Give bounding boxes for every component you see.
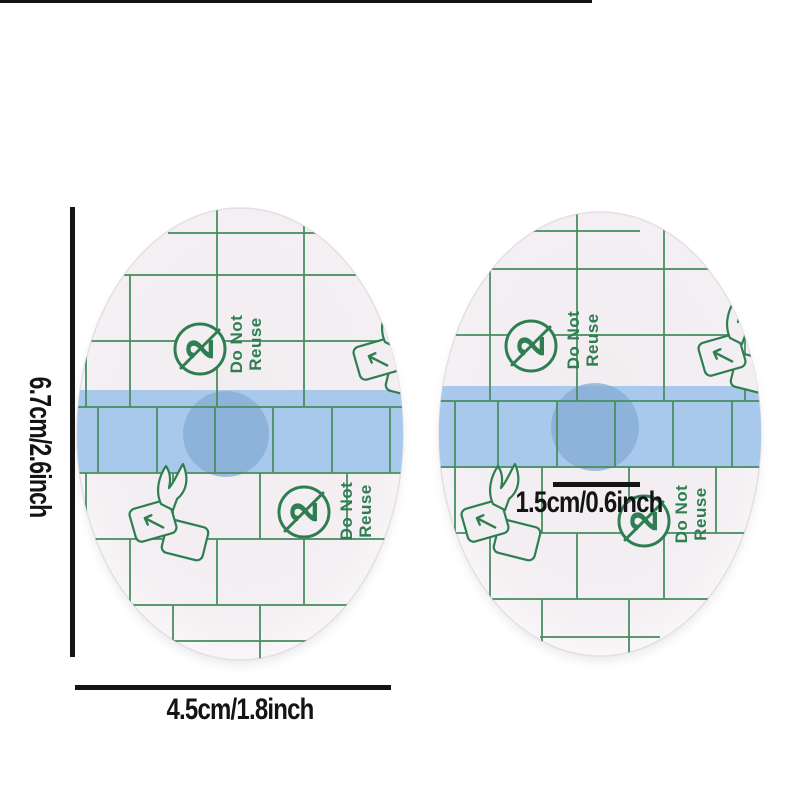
do-not-reuse-label: Do Not Reuse (564, 311, 602, 370)
width-measure-line (75, 685, 391, 690)
center-pad-circle (183, 391, 269, 477)
svg-text:Do Not: Do Not (337, 482, 356, 541)
height-measure-line (70, 207, 75, 657)
svg-text:Do Not: Do Not (227, 315, 246, 374)
svg-text:2: 2 (284, 501, 326, 522)
svg-text:2: 2 (511, 335, 553, 356)
patch-right: 2 Do Not Reuse 2 Do Not Reuse ot e (430, 211, 778, 675)
patches-illustration: 2 Do Not Reuse 2 Do Not Reuse ot e (0, 0, 800, 800)
svg-text:Reuse: Reuse (356, 484, 375, 538)
svg-text:Do Not: Do Not (564, 311, 583, 370)
no-reuse-icon: 2 (506, 321, 556, 371)
center-pad-circle (551, 383, 639, 471)
width-measure-label: 4.5cm/1.8inch (166, 693, 313, 727)
do-not-reuse-label: Do Not Reuse (337, 482, 375, 541)
svg-text:Reuse: Reuse (691, 487, 710, 541)
svg-text:Reuse: Reuse (246, 317, 265, 371)
height-measure-label: 6.7cm/2.6inch (22, 377, 58, 518)
do-not-reuse-label: Do Not Reuse (672, 485, 710, 544)
svg-text:Reuse: Reuse (583, 313, 602, 367)
no-reuse-icon: 2 (279, 487, 329, 537)
no-reuse-icon: 2 (175, 324, 225, 374)
band-measure-label: 1.5cm/0.6inch (515, 486, 662, 520)
patch-left: 2 Do Not Reuse 2 Do Not Reuse ot e (70, 208, 433, 677)
svg-text:2: 2 (180, 338, 222, 359)
svg-text:Do Not: Do Not (672, 485, 691, 544)
do-not-reuse-label: Do Not Reuse (227, 315, 265, 374)
